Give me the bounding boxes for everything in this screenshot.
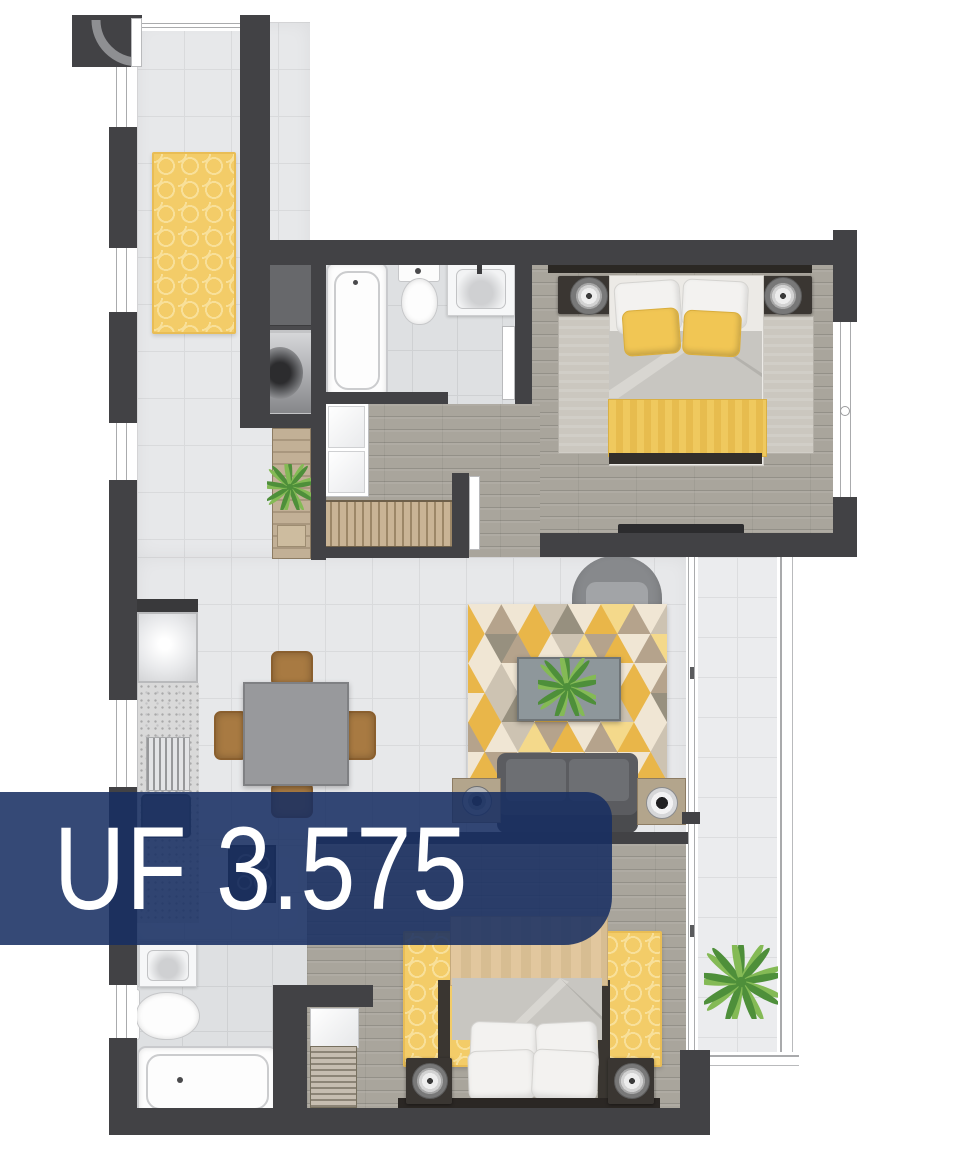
door-handle — [690, 925, 694, 937]
sink-vanity-1 — [447, 260, 515, 316]
bed-1-footboard — [609, 453, 762, 464]
interior-wall — [273, 985, 307, 1110]
sink-vanity-2 — [139, 943, 197, 987]
table-lamp — [764, 277, 802, 315]
interior-wall — [540, 533, 857, 557]
toilet-1-button — [415, 268, 421, 274]
bathroom-1-door — [502, 326, 515, 400]
fridge-top — [136, 599, 198, 612]
window — [109, 985, 137, 1038]
dish-rack — [146, 737, 190, 791]
window — [109, 248, 137, 312]
pillow — [531, 1048, 600, 1101]
linen-closet — [268, 260, 315, 326]
sink-bowl-1 — [456, 269, 506, 309]
plant — [267, 464, 313, 515]
balcony-sliding-door — [686, 557, 698, 1050]
interior-wall — [307, 985, 373, 1007]
dining-table — [243, 682, 349, 786]
closet-door-panel — [328, 406, 365, 448]
wardrobe-louver — [310, 1046, 357, 1108]
sideboard — [322, 500, 465, 548]
door-mullion — [682, 812, 700, 824]
floorplan: UF 3.575 — [0, 0, 959, 1156]
interior-wall — [322, 392, 448, 404]
bathtub-2-drain — [177, 1077, 183, 1083]
sink-bowl-2 — [147, 950, 189, 981]
window — [142, 20, 240, 31]
door-handle — [690, 667, 694, 679]
closet-door-panel — [328, 451, 365, 493]
table-lamp — [412, 1063, 448, 1099]
bathtub-2-basin — [146, 1054, 269, 1110]
exterior-wall — [109, 480, 137, 700]
console-box — [277, 525, 306, 547]
bedroom-1-window — [833, 322, 855, 497]
exterior-wall — [109, 312, 137, 423]
faucet-1 — [477, 264, 482, 274]
refrigerator — [137, 612, 198, 683]
exterior-wall — [833, 230, 857, 322]
accent-pillow — [682, 310, 742, 358]
wardrobe-shelf — [310, 1008, 359, 1048]
exterior-wall — [680, 1050, 710, 1110]
exterior-wall — [109, 1038, 137, 1110]
toilet-2-bowl — [136, 992, 200, 1040]
toilet-1-bowl — [401, 278, 438, 325]
price-banner: UF 3.575 — [0, 792, 612, 945]
window-handle — [840, 406, 850, 416]
entry-rug — [152, 152, 236, 334]
interior-wall — [452, 473, 469, 558]
throw-blanket — [608, 399, 767, 457]
pillow — [467, 1049, 537, 1101]
toilet-1 — [398, 262, 438, 324]
bathtub-1-drain — [353, 280, 358, 285]
window — [109, 67, 137, 127]
price-label: UF 3.575 — [0, 810, 468, 928]
side-table — [637, 778, 686, 825]
plant — [704, 945, 778, 1024]
accent-pillow — [621, 307, 681, 357]
balcony-railing-south — [697, 1052, 799, 1070]
exterior-wall — [109, 1108, 710, 1135]
window — [109, 423, 137, 480]
exterior-wall — [833, 497, 857, 555]
exterior-wall — [240, 15, 270, 428]
bedroom-1-door — [469, 476, 480, 550]
exterior-wall — [109, 127, 137, 248]
plant — [538, 658, 596, 721]
balcony-railing-east — [777, 555, 799, 1068]
entry-door — [131, 18, 142, 67]
bathtub-1 — [326, 262, 388, 399]
table-lamp — [614, 1063, 650, 1099]
table-lamp — [570, 277, 608, 315]
closet-doors — [324, 402, 369, 497]
interior-wall — [515, 240, 532, 404]
interior-wall — [311, 547, 467, 558]
bathtub-1-basin — [334, 271, 380, 390]
speaker — [646, 787, 678, 819]
exterior-wall — [270, 240, 857, 265]
window — [109, 700, 137, 787]
washer-base — [244, 414, 318, 428]
